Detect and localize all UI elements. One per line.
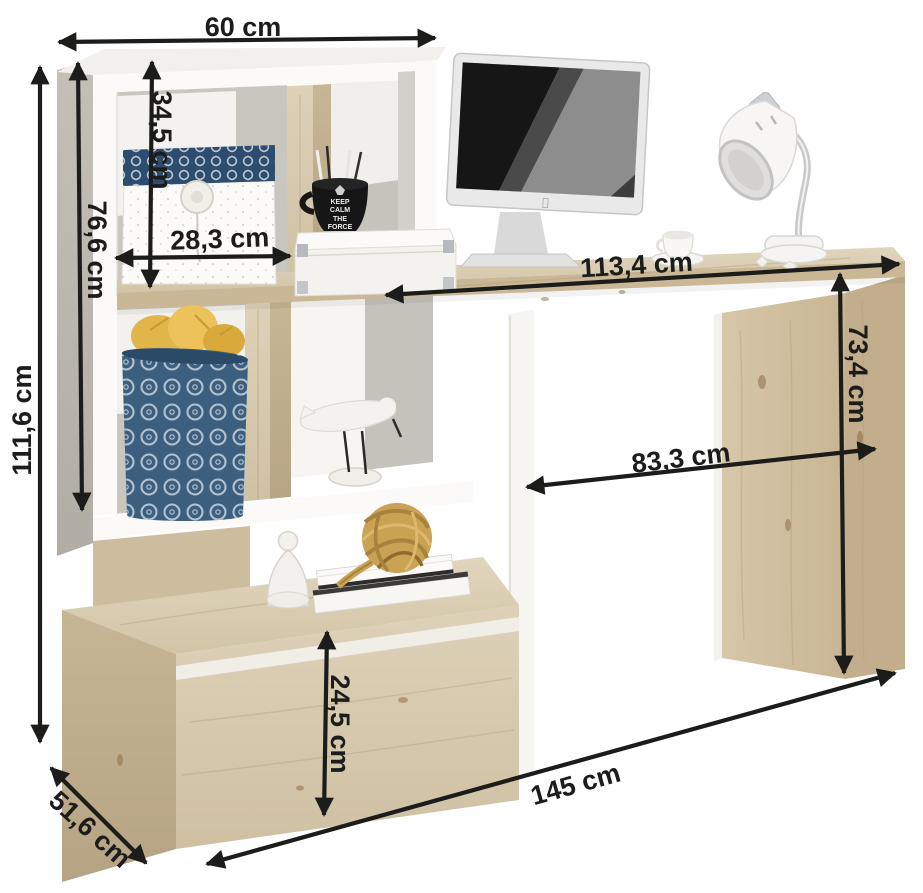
storage-basket [122, 305, 248, 521]
dim-label-top-compartment-height: 34,5 cm [147, 90, 177, 189]
dim-label-drawer-height: 24,5 cm [325, 674, 355, 773]
hutch-side-panel [57, 60, 93, 556]
metal-corner-box [295, 229, 456, 296]
dim-label-top-width: 60 cm [205, 12, 282, 42]
dim-label-compartment-width: 28,3 cm [170, 222, 270, 255]
desk-right-support-panel [714, 275, 905, 679]
dim-label-total-width: 145 cm [527, 758, 623, 812]
mug-text-line1: KEEP [330, 199, 349, 206]
dim-label-hutch-height: 76,6 cm [82, 200, 112, 299]
imac-stand-neck [494, 212, 548, 254]
storage-box-blue-lid [122, 145, 276, 284]
apple-logo-icon:  [542, 196, 549, 209]
imac-stand-base [461, 254, 581, 267]
dim-arrow-compartment-width [116, 256, 290, 258]
compartment-back-mid-right-light [291, 296, 365, 478]
diagram-canvas: KEEP CALM THE FORCE [0, 0, 923, 893]
mug-text-line2: CALM [330, 207, 350, 214]
mug-text-line4: FORCE [328, 224, 353, 231]
mug-text-line3: THE [333, 216, 347, 223]
buddha-figurine [267, 532, 309, 609]
compartment-back-mid-right-shade [365, 290, 433, 470]
hutch-left-bar [93, 92, 117, 543]
wood-divider-mid [245, 299, 291, 519]
dim-label-total-height: 111,6 cm [7, 364, 37, 475]
compartment-back-top-right [331, 73, 398, 190]
desk-lamp [709, 90, 827, 263]
dim-label-desk-height: 73,4 cm [843, 324, 873, 423]
furniture-dimension-diagram: KEEP CALM THE FORCE [0, 0, 923, 893]
